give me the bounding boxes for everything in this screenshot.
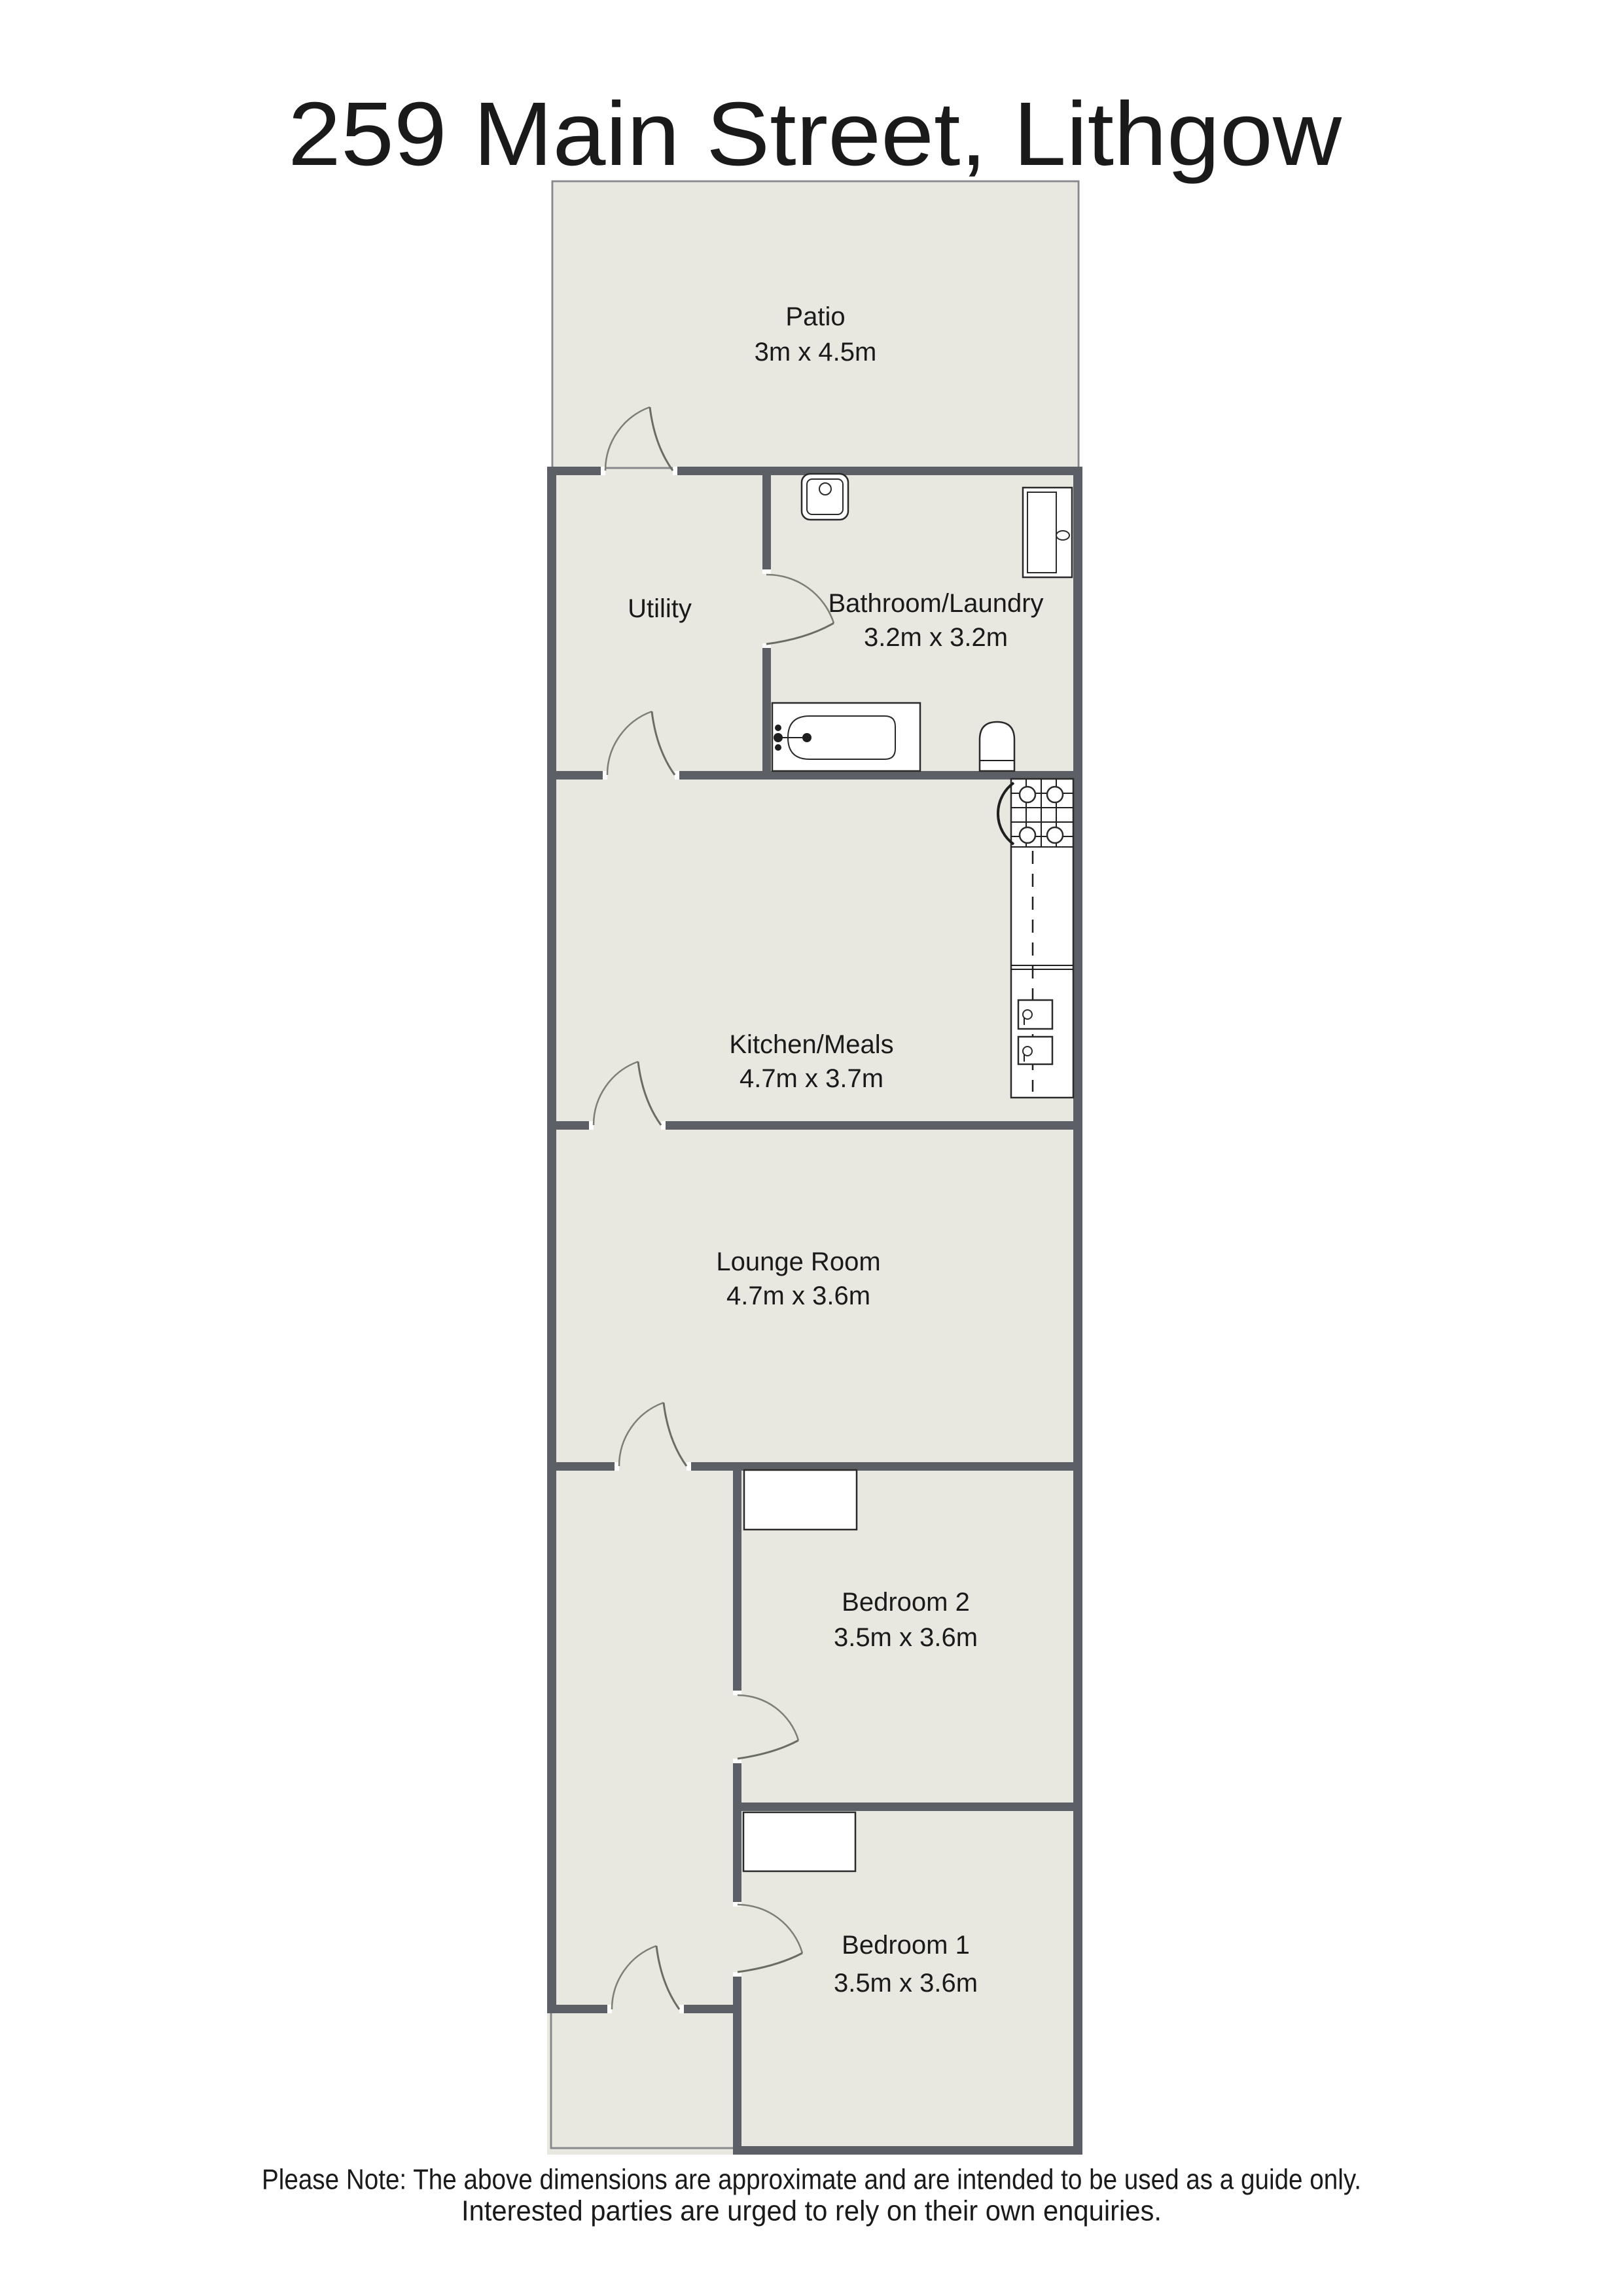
- wall-hall-3: [733, 1811, 741, 1905]
- utility-label: Utility: [628, 594, 692, 623]
- wall-right: [1073, 467, 1082, 2155]
- page-title: 259 Main Street, Lithgow: [288, 84, 1342, 185]
- wardrobe-bedroom1: [743, 1812, 855, 1871]
- lounge-label: Lounge Room: [716, 1247, 880, 1276]
- bedroom2-dims: 3.5m x 3.6m: [834, 1623, 978, 1652]
- bathroom-label: Bathroom/Laundry: [828, 589, 1043, 618]
- bathtub-symbol: [772, 703, 920, 771]
- lounge-dims: 4.7m x 3.6m: [726, 1282, 870, 1310]
- wall-bed1-bottom: [733, 2146, 1082, 2155]
- wall-hall-2: [733, 1759, 741, 1803]
- floorplan-page: 259 Main Street, Lithgow: [0, 0, 1623, 2296]
- wall-hall-bottom-left: [547, 2005, 612, 2013]
- note-line-1: Please Note: The above dimensions are ap…: [262, 2164, 1361, 2196]
- wall-kitchen-bottom-left: [556, 1121, 594, 1130]
- wall-utility-bath-lower: [762, 643, 771, 771]
- bedroom1-dims: 3.5m x 3.6m: [834, 1969, 978, 1998]
- wall-bath-bottom-left: [556, 771, 607, 780]
- wall-left: [547, 467, 556, 2013]
- laundry-sink-symbol: [802, 474, 848, 520]
- wall-hall-4: [733, 1972, 741, 2155]
- patio-dims: 3m x 4.5m: [755, 338, 877, 367]
- bedroom1-label: Bedroom 1: [842, 1931, 970, 1960]
- sliding-door-panel-symbol: [1023, 488, 1072, 577]
- patio-label: Patio: [785, 302, 845, 331]
- wall-hall-1: [733, 1471, 741, 1695]
- bathroom-dims: 3.2m x 3.2m: [864, 623, 1008, 652]
- toilet-symbol: [980, 722, 1014, 771]
- floorplan-drawing: 259 Main Street, Lithgow: [0, 0, 1623, 2296]
- note-line-2: Interested parties are urged to rely on …: [461, 2195, 1162, 2227]
- disclaimer-note: Please Note: The above dimensions are ap…: [262, 2164, 1361, 2227]
- wardrobe-bedroom2: [744, 1470, 857, 1530]
- wall-utility-bath-upper: [762, 475, 771, 574]
- wall-lounge-bottom-left: [556, 1462, 619, 1471]
- wall-kitchen-bottom-right: [661, 1121, 1073, 1130]
- wall-bed2-bed1: [733, 1803, 1073, 1811]
- wall-hall-bottom-right: [679, 2005, 741, 2013]
- bedroom2-label: Bedroom 2: [842, 1588, 970, 1617]
- kitchen-label: Kitchen/Meals: [729, 1030, 893, 1059]
- kitchen-dims: 4.7m x 3.7m: [740, 1064, 883, 1093]
- wall-top-right: [673, 467, 1082, 475]
